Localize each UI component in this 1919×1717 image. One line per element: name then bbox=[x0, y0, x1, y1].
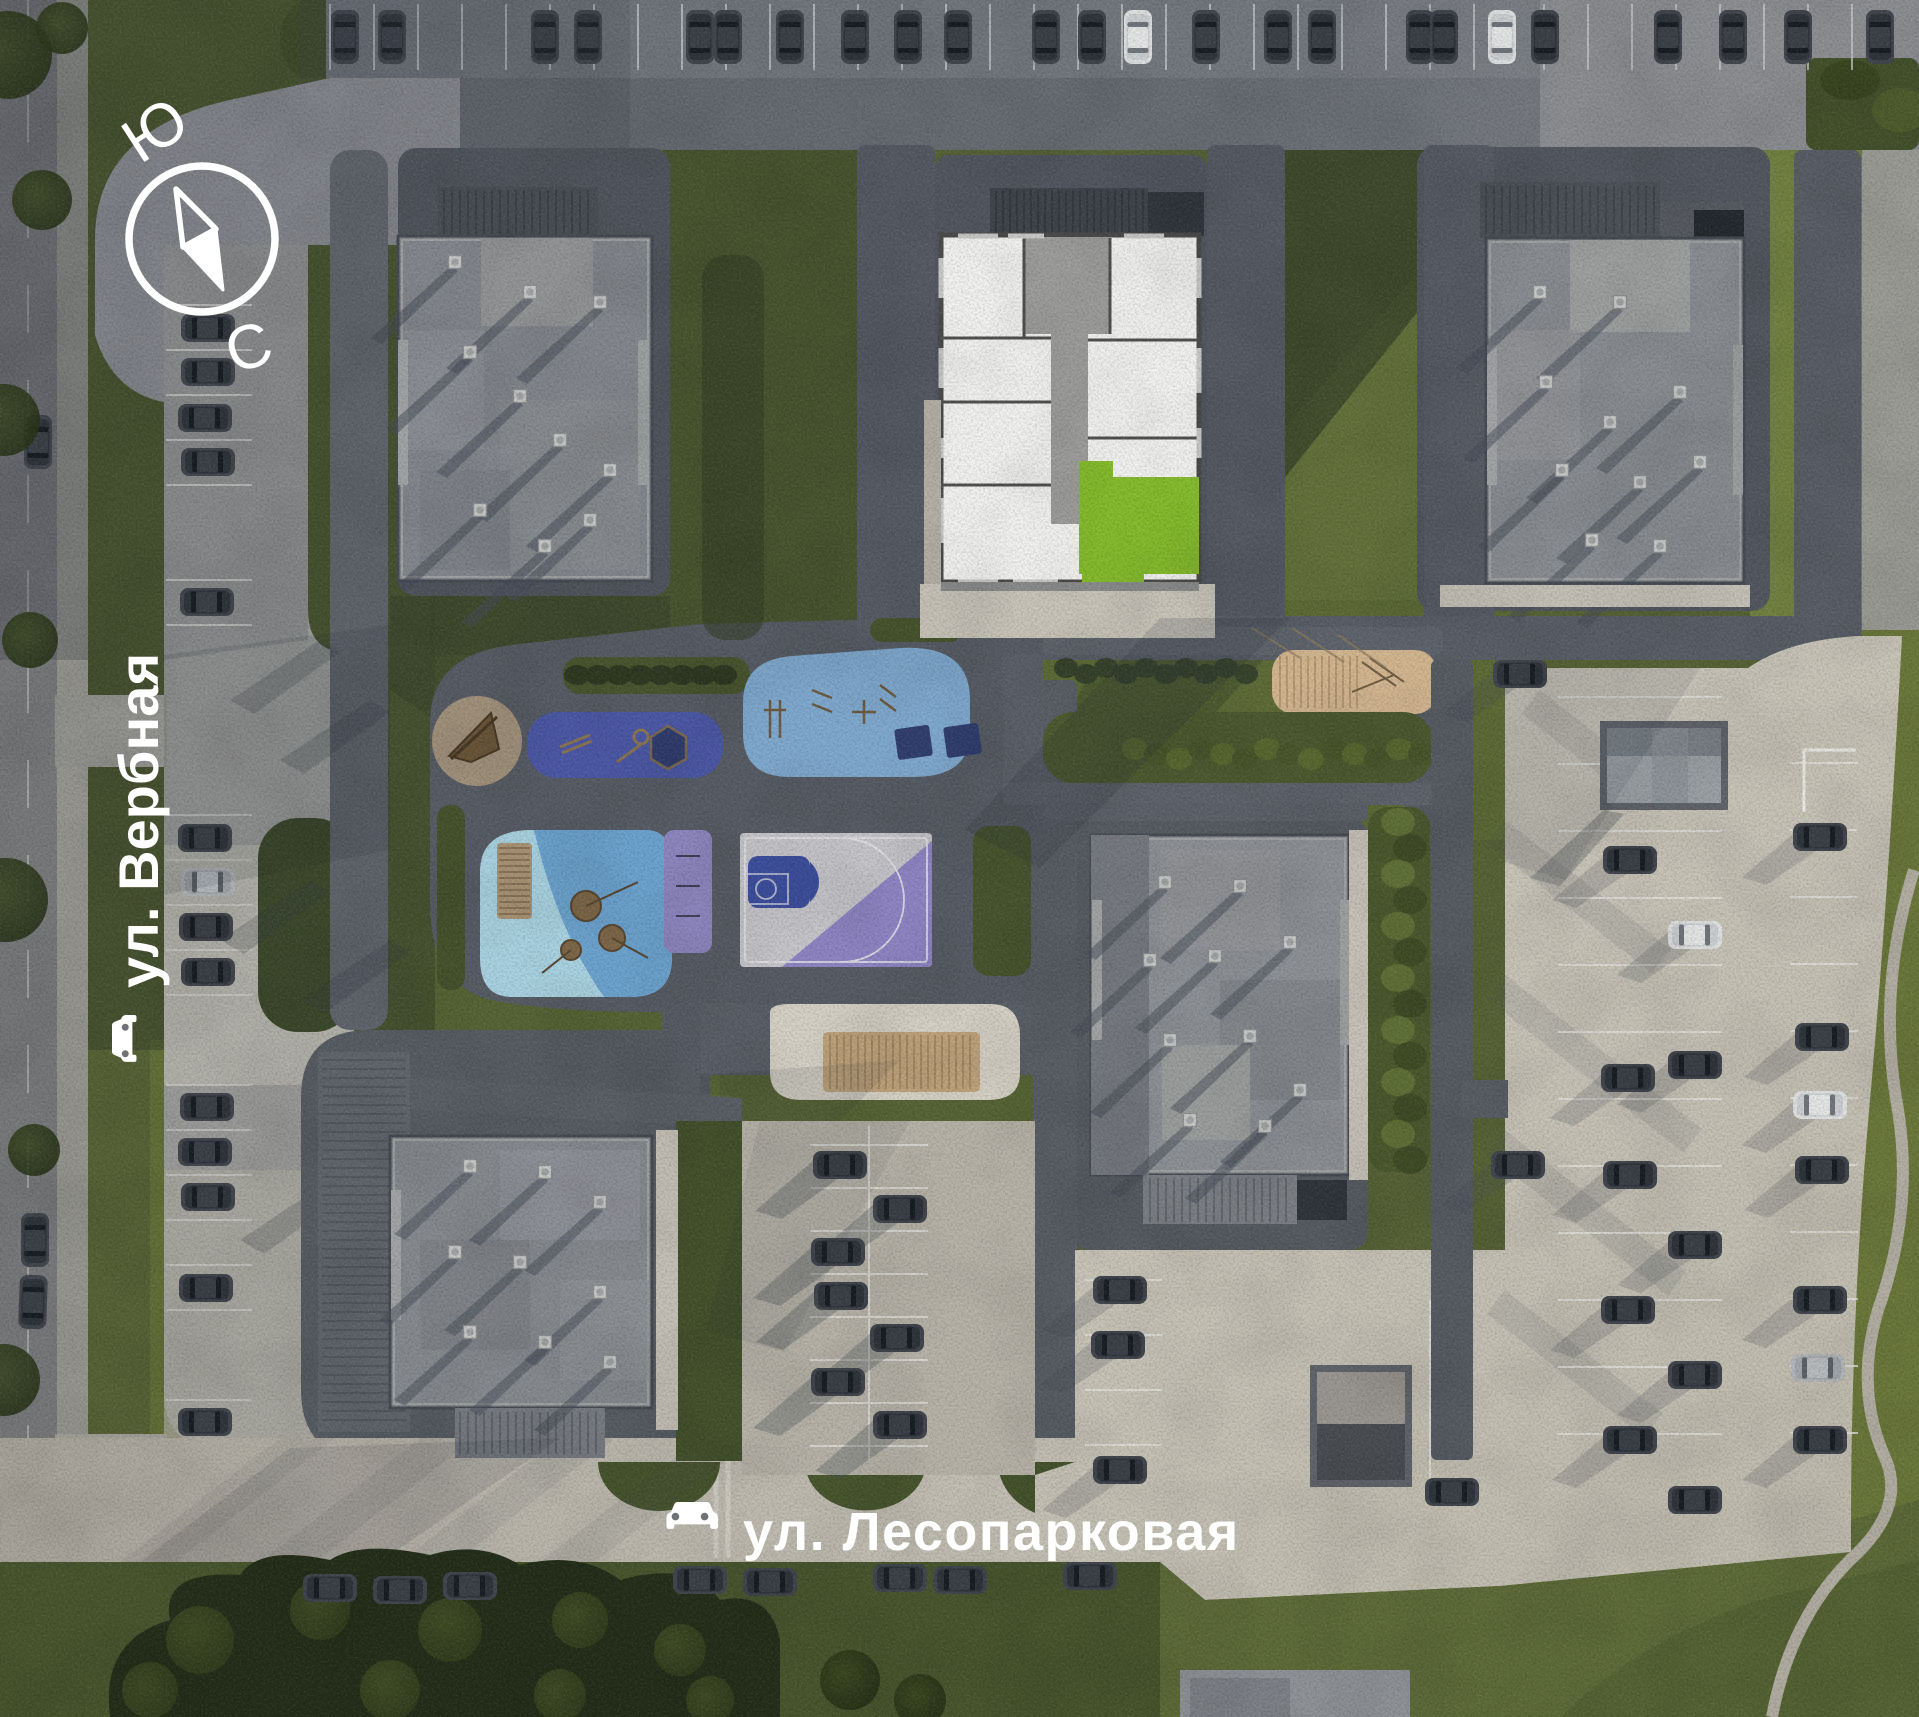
svg-text:ул. Вербная: ул. Вербная bbox=[107, 653, 170, 988]
svg-text:ул. Лесопарковая: ул. Лесопарковая bbox=[743, 1502, 1240, 1562]
